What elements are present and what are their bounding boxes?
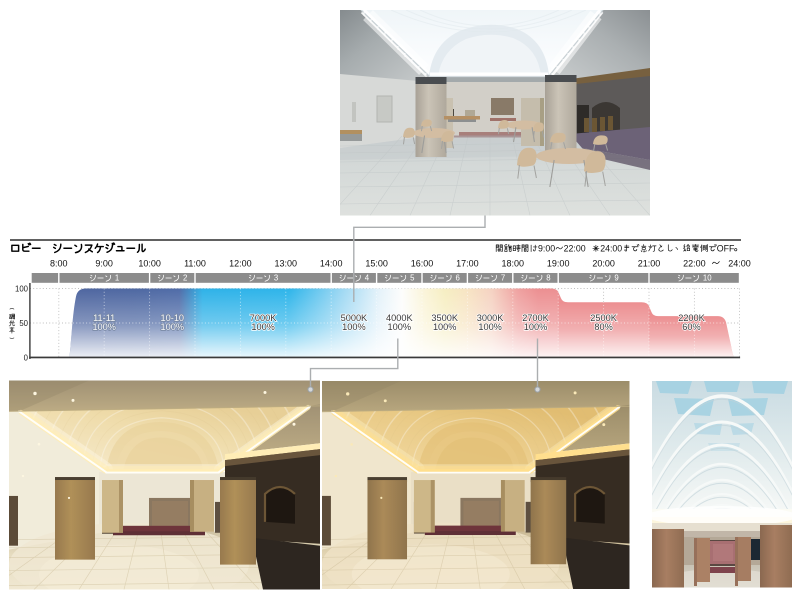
svg-text:8:00: 8:00: [50, 259, 68, 269]
svg-text:5: 5: [410, 274, 415, 283]
svg-text:8: 8: [546, 274, 550, 283]
svg-text:100%: 100%: [342, 322, 366, 332]
svg-text:2: 2: [183, 274, 187, 283]
svg-text:22:00: 22:00: [683, 259, 706, 269]
svg-text:20:00: 20:00: [592, 259, 615, 269]
svg-text:9:00: 9:00: [95, 259, 113, 269]
svg-text:22:00: 22:00: [564, 243, 586, 253]
svg-text:100%: 100%: [251, 322, 275, 332]
svg-text:OFF: OFF: [717, 243, 735, 253]
svg-text:16:00: 16:00: [411, 259, 434, 269]
svg-text:7: 7: [501, 274, 505, 283]
svg-text:24:00: 24:00: [600, 243, 622, 253]
svg-text:9: 9: [614, 274, 618, 283]
svg-text:18:00: 18:00: [502, 259, 525, 269]
svg-text:24:00: 24:00: [728, 259, 751, 269]
svg-text:100%: 100%: [478, 322, 502, 332]
svg-text:100%: 100%: [161, 322, 185, 332]
svg-text:13:00: 13:00: [275, 259, 298, 269]
svg-text:3: 3: [274, 274, 278, 283]
svg-text:9:00: 9:00: [538, 243, 555, 253]
svg-text:12:00: 12:00: [229, 259, 252, 269]
svg-text:50: 50: [19, 319, 28, 328]
svg-text:80%: 80%: [594, 322, 612, 332]
svg-text:21:00: 21:00: [638, 259, 661, 269]
svg-text:6: 6: [456, 274, 460, 283]
svg-text:19:00: 19:00: [547, 259, 570, 269]
svg-text:17:00: 17:00: [456, 259, 479, 269]
svg-text:60%: 60%: [682, 322, 700, 332]
svg-text:10: 10: [703, 274, 712, 283]
svg-text:100: 100: [15, 285, 29, 294]
svg-text:4: 4: [365, 274, 370, 283]
svg-text:1: 1: [115, 274, 119, 283]
svg-text:14:00: 14:00: [320, 259, 343, 269]
svg-text:100%: 100%: [92, 322, 116, 332]
svg-text:100%: 100%: [433, 322, 457, 332]
svg-text:100%: 100%: [388, 322, 412, 332]
svg-text:100%: 100%: [524, 322, 548, 332]
svg-text:11:00: 11:00: [184, 259, 206, 269]
svg-text:0: 0: [24, 354, 29, 363]
svg-text:15:00: 15:00: [365, 259, 388, 269]
svg-text:10:00: 10:00: [138, 259, 161, 269]
